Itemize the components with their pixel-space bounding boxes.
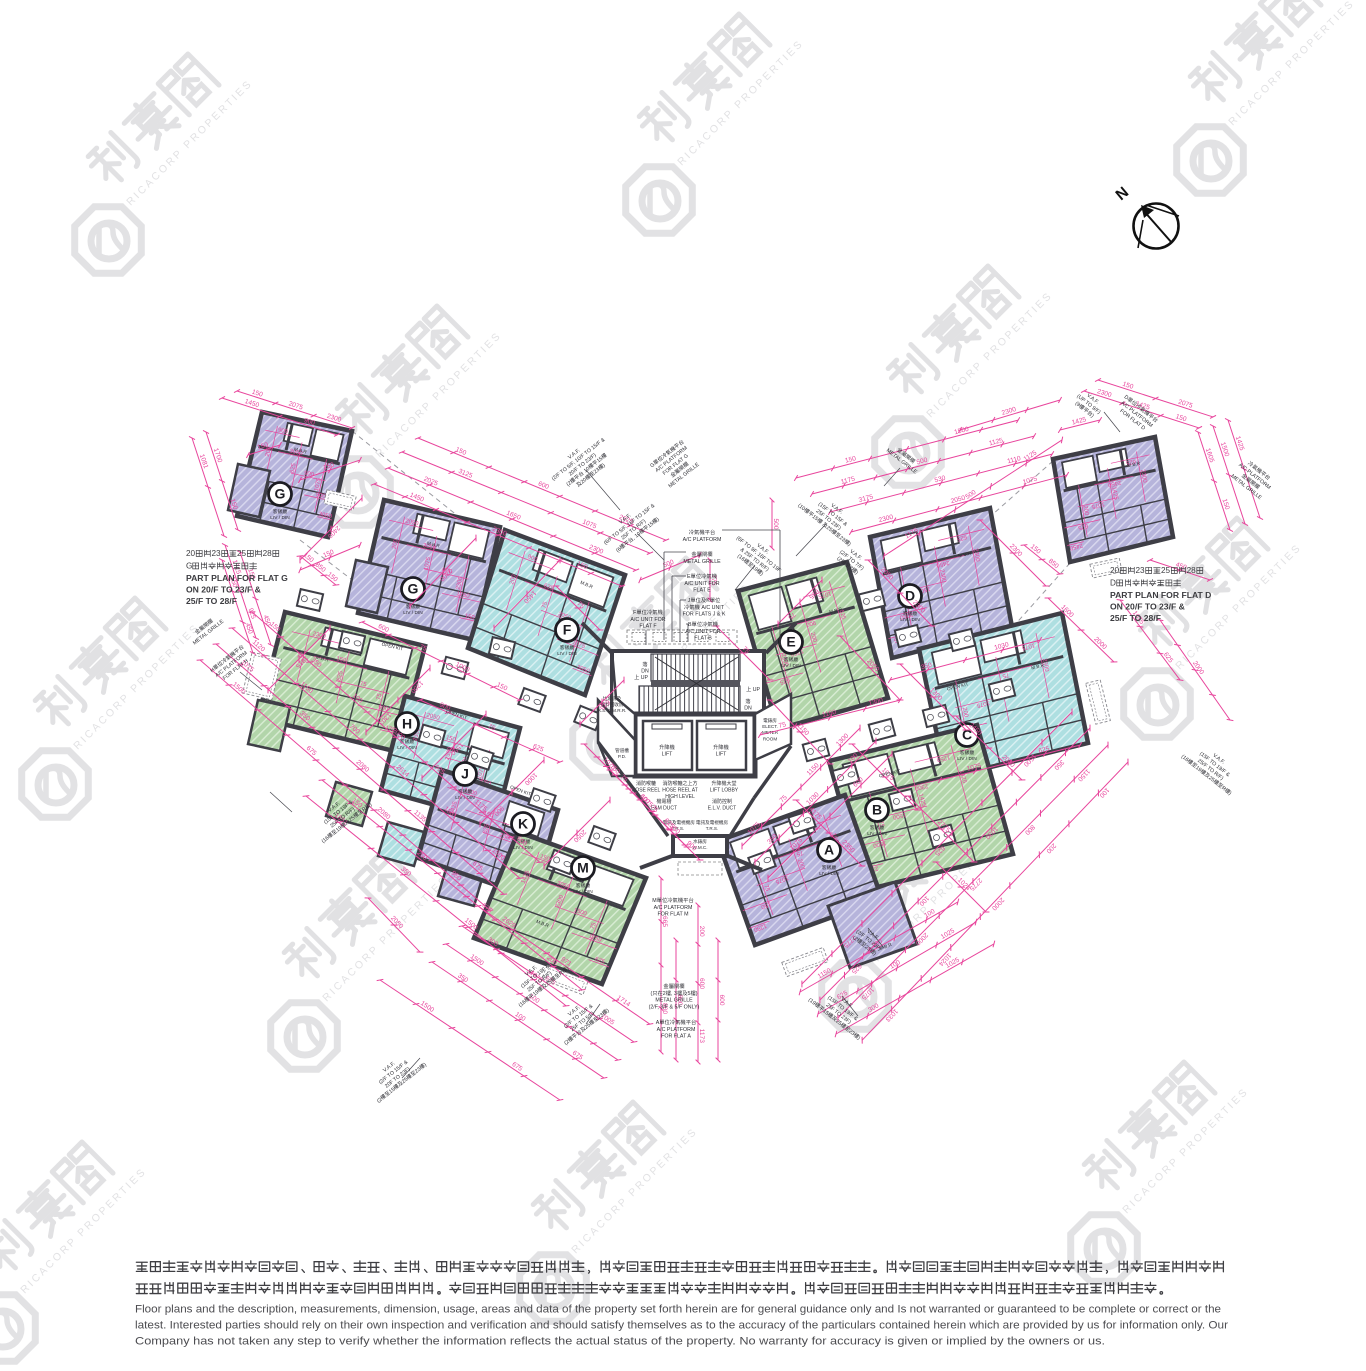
svg-text:LIV / DIN: LIV / DIN [403,610,423,616]
svg-text:客飯廳: 客飯廳 [822,864,837,871]
svg-text:LIV / DIN: LIV / DIN [900,617,920,623]
svg-text:25/F TO 28/F: 25/F TO 28/F [1110,613,1161,623]
svg-text:E.L.V. DUCT: E.L.V. DUCT [708,806,736,812]
svg-text:F: F [563,622,572,638]
svg-text:PART PLAN FOR FLAT D: PART PLAN FOR FLAT D [1110,590,1211,600]
svg-text:LIV / DIN: LIV / DIN [781,663,801,669]
svg-text:A/C PLATFORM: A/C PLATFORM [683,537,722,543]
svg-text:J: J [461,766,469,782]
svg-text:DN: DN [744,706,752,712]
svg-text:LIV / DIN: LIV / DIN [573,889,593,895]
svg-text:G: G [275,486,286,502]
svg-text:客飯廳: 客飯廳 [458,788,473,795]
svg-text:落: 落 [642,660,648,668]
svg-text:PART PLAN FOR FLAT G: PART PLAN FOR FLAT G [186,573,288,583]
svg-text:A/C PLATFORM: A/C PLATFORM [657,1027,696,1033]
svg-text:電錶房: 電錶房 [763,717,777,724]
svg-text:LIV / DIN: LIV / DIN [557,651,577,657]
svg-text:G: G [186,562,192,571]
svg-text:金屬閘欄: 金屬閘欄 [663,982,684,990]
svg-text:FOR FLAT A: FOR FLAT A [661,1034,691,1040]
svg-text:冷氣機 A/C UNIT: 冷氣機 A/C UNIT [684,603,725,611]
svg-text:G: G [408,581,419,597]
svg-text:F單位冷氣機: F單位冷氣機 [633,608,663,616]
svg-text:FLAT E: FLAT E [693,588,711,594]
svg-text:金屬閘欄: 金屬閘欄 [691,550,712,558]
svg-text:1173: 1173 [698,1029,705,1044]
svg-text:LIV / DIN: LIV / DIN [270,515,290,521]
svg-text:(只在2樓, 3樓及5樓): (只在2樓, 3樓及5樓) [650,989,697,997]
svg-text:M單位冷氣機平台: M單位冷氣機平台 [652,896,694,904]
svg-text:20: 20 [1110,566,1120,575]
svg-text:E: E [786,634,795,650]
svg-text:200: 200 [698,926,705,937]
svg-text:D: D [1110,579,1116,588]
svg-text:ROOM: ROOM [763,736,777,741]
svg-text:FLAT F: FLAT F [639,624,657,630]
svg-text:LIFT LOBBY: LIFT LOBBY [710,788,739,794]
svg-text:25: 25 [1161,566,1171,575]
svg-text:LIFT: LIFT [716,752,727,758]
svg-text:落: 落 [745,697,751,705]
svg-text:上 UP: 上 UP [746,685,760,693]
svg-text:600: 600 [698,978,705,989]
svg-text:機電槽: 機電槽 [656,798,671,805]
svg-text:客飯廳: 客飯廳 [273,508,288,515]
svg-text:管道槽: 管道槽 [615,747,629,754]
svg-text:M: M [577,860,589,876]
svg-text:A單位冷氣機平台: A單位冷氣機平台 [656,1018,697,1026]
svg-text:客飯廳: 客飯廳 [560,644,575,651]
svg-text:23: 23 [212,549,222,558]
svg-text:ON 20/F TO 23/F &: ON 20/F TO 23/F & [186,585,261,595]
svg-text:客飯廳: 客飯廳 [870,824,885,831]
svg-text:23: 23 [1136,566,1146,575]
svg-text:ELECT.: ELECT. [762,724,778,729]
svg-text:消防喉轆之上方: 消防喉轆之上方 [662,780,697,787]
svg-text:(2/F, 3/F & 5/F ONLY): (2/F, 3/F & 5/F ONLY) [649,1004,700,1010]
svg-text:28: 28 [1187,566,1197,575]
svg-text:升降機大堂: 升降機大堂 [711,780,736,787]
svg-text:升降機: 升降機 [659,743,675,751]
svg-text:J單位及K單位: J單位及K單位 [688,596,721,604]
svg-text:B: B [872,802,882,818]
svg-text:FLAT B: FLAT B [694,636,712,642]
svg-text:LIFT: LIFT [662,752,673,758]
svg-text:METAL GRILLE: METAL GRILLE [655,998,693,1004]
svg-text:latest. Interested parties sho: latest. Interested parties should rely o… [135,1320,1228,1332]
svg-text:LIV / DIN: LIV / DIN [397,745,417,751]
svg-text:A/C UNIT FOR: A/C UNIT FOR [685,629,720,635]
svg-text:665: 665 [661,916,668,927]
svg-text:HOSE REEL AT: HOSE REEL AT [662,788,698,794]
svg-text:客飯廳: 客飯廳 [903,610,918,617]
svg-text:LIV / DIN: LIV / DIN [957,756,977,762]
svg-text:600: 600 [718,994,725,1005]
svg-text:LIV / DIN: LIV / DIN [819,871,839,877]
svg-text:消防控制: 消防控制 [712,798,732,805]
svg-text:METAL GRILLE: METAL GRILLE [683,559,721,565]
svg-text:客飯廳: 客飯廳 [576,882,591,889]
svg-text:20: 20 [186,549,196,558]
svg-text:B單位冷氣機: B單位冷氣機 [688,620,719,628]
svg-text:500: 500 [772,518,779,529]
svg-text:DN: DN [641,669,649,675]
svg-text:25/F TO 28/F: 25/F TO 28/F [186,596,237,606]
svg-text:28: 28 [263,549,273,558]
svg-text:A/C UNIT FOR: A/C UNIT FOR [684,581,719,587]
svg-text:冷氣機平台: 冷氣機平台 [689,528,716,536]
svg-text:客飯廳: 客飯廳 [406,603,421,610]
svg-text:客飯廳: 客飯廳 [784,656,799,663]
svg-text:Floor plans and the descriptio: Floor plans and the description, measure… [135,1304,1221,1316]
svg-text:客飯廳: 客飯廳 [960,749,975,756]
svg-text:FOR FLATS J & K: FOR FLATS J & K [683,612,726,618]
svg-text:A/C UNIT FOR: A/C UNIT FOR [630,617,665,623]
svg-text:LIV / DIN: LIV / DIN [867,831,887,837]
svg-text:A: A [824,842,834,858]
svg-text:25: 25 [237,549,247,558]
svg-text:Company has not taken any step: Company has not taken any step to verify… [135,1336,1105,1348]
svg-text:H: H [402,716,412,732]
svg-text:上 UP: 上 UP [634,673,648,681]
svg-text:E單位冷氣機: E單位冷氣機 [687,572,718,580]
svg-text:升降機: 升降機 [713,743,729,751]
svg-text:消防喉轆: 消防喉轆 [636,780,656,787]
svg-text:FOR FLAT M: FOR FLAT M [658,912,689,918]
svg-text:K: K [518,816,528,832]
svg-text:P.D.: P.D. [618,754,626,759]
svg-text:電訊及電視機房: 電訊及電視機房 [696,819,729,826]
svg-text:T.R.S.: T.R.S. [706,826,719,831]
svg-text:ON 20/F TO 23/F &: ON 20/F TO 23/F & [1110,602,1185,612]
svg-text:A/C PLATFORM: A/C PLATFORM [654,905,693,911]
